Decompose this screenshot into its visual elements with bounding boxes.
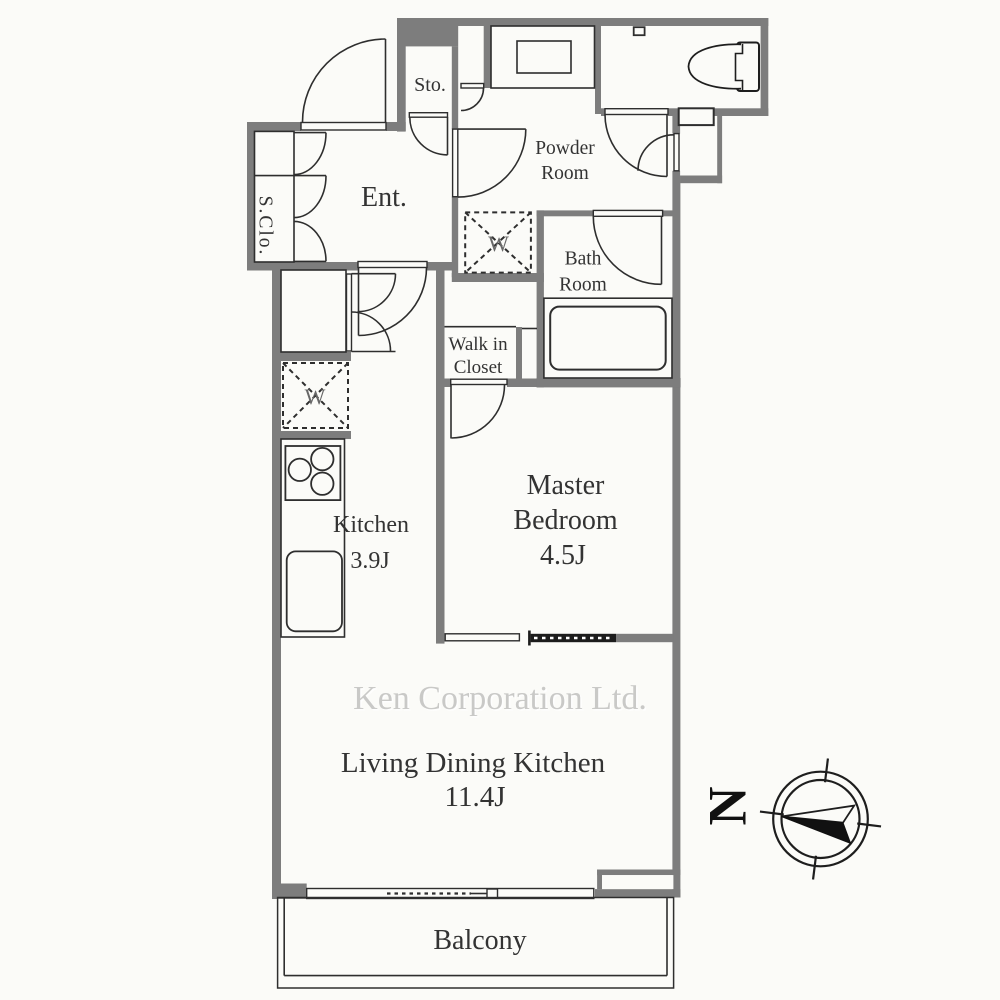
svg-text:Room: Room — [559, 275, 607, 296]
svg-text:Bedroom: Bedroom — [513, 505, 617, 536]
svg-text:Sto.: Sto. — [414, 74, 446, 96]
svg-text:3.9J: 3.9J — [350, 548, 389, 574]
svg-text:Closet: Closet — [454, 357, 503, 378]
svg-text:S.Clo.: S.Clo. — [255, 196, 276, 257]
svg-text:W: W — [488, 231, 509, 256]
svg-text:Walk in: Walk in — [448, 334, 508, 355]
svg-text:Ent.: Ent. — [361, 182, 407, 213]
svg-text:Room: Room — [541, 163, 589, 184]
svg-text:W: W — [305, 384, 326, 409]
svg-text:Bath: Bath — [565, 249, 602, 270]
svg-text:4.5J: 4.5J — [540, 540, 586, 571]
svg-text:11.4J: 11.4J — [445, 781, 506, 813]
svg-text:Master: Master — [527, 470, 605, 501]
svg-text:Living Dining Kitchen: Living Dining Kitchen — [341, 747, 606, 779]
svg-text:N: N — [697, 787, 757, 826]
svg-text:Powder: Powder — [535, 138, 595, 159]
svg-text:Balcony: Balcony — [433, 925, 526, 956]
svg-text:Kitchen: Kitchen — [333, 512, 409, 538]
svg-text:Ken Corporation Ltd.: Ken Corporation Ltd. — [353, 680, 647, 717]
